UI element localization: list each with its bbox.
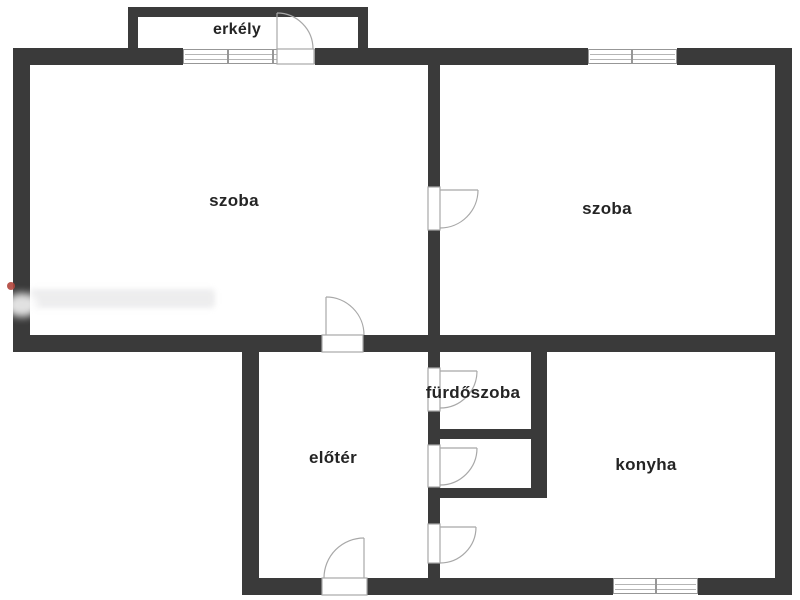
wall-centre-segment-2 — [428, 230, 440, 335]
room-region-wc — [440, 439, 531, 488]
watermark-smudge — [30, 289, 215, 308]
kitchen-window — [613, 578, 698, 594]
wall-bathroom-wc-divider — [440, 429, 547, 439]
wall-top-middle-segment — [315, 48, 588, 65]
window-divider — [227, 50, 229, 63]
wall-hall-left — [242, 335, 259, 595]
room-right-window — [588, 49, 677, 64]
door-kitchen — [428, 524, 476, 563]
wall-balcony-top — [128, 7, 368, 17]
balcony-window — [183, 49, 315, 64]
window-divider — [272, 50, 274, 63]
window-divider — [631, 50, 633, 63]
window-mullion-line — [185, 59, 313, 60]
wall-top-left-segment — [13, 48, 183, 65]
wall-centre-segment-5 — [428, 487, 440, 524]
room-label-bathroom: fürdőszoba — [426, 383, 521, 403]
floor-plan: erkély szoba szoba fürdőszoba előtér kon… — [0, 0, 800, 600]
wall-right-outer — [775, 48, 792, 595]
wall-centre-segment-4 — [428, 411, 440, 445]
wall-bottom-left-segment — [242, 578, 322, 595]
wall-mid-horizontal-right — [363, 335, 792, 352]
window-divider — [655, 579, 657, 593]
wall-mid-horizontal-left — [13, 335, 322, 352]
wall-glow-spot — [6, 293, 38, 317]
wall-bathroom-right — [531, 352, 547, 498]
room-label-room-left: szoba — [209, 191, 259, 211]
wall-centre-segment-6 — [428, 563, 440, 578]
red-marker-dot — [7, 282, 15, 290]
wall-balcony-right — [358, 7, 368, 48]
wall-bottom-right-segment — [698, 578, 792, 595]
wall-wc-bottom — [440, 488, 547, 498]
room-label-room-right: szoba — [582, 199, 632, 219]
room-label-hall: előtér — [309, 448, 357, 468]
room-label-balcony: erkély — [213, 21, 261, 39]
room-label-kitchen: konyha — [615, 455, 676, 475]
window-mullion-line — [185, 54, 313, 55]
wall-bottom-middle-segment — [367, 578, 613, 595]
wall-centre-segment-3 — [428, 352, 440, 368]
wall-centre-segment-1 — [428, 65, 440, 187]
